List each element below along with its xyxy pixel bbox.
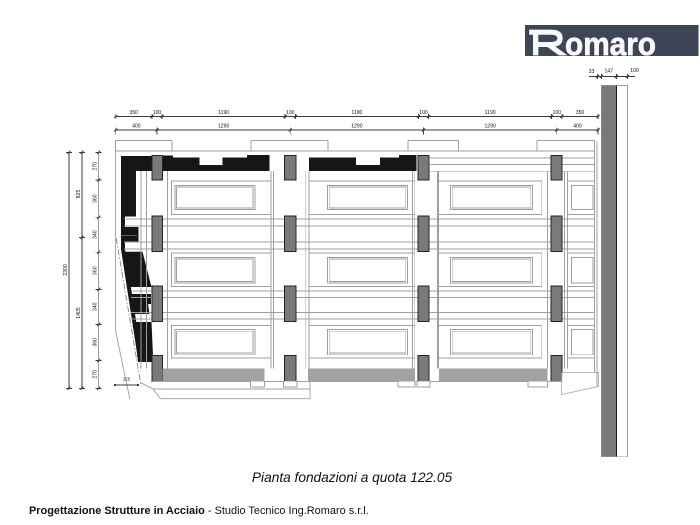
svg-text:Progettazione Strutture in Acc: Progettazione Strutture in Acciaio - Stu… xyxy=(29,505,369,517)
svg-text:1190: 1190 xyxy=(218,110,229,116)
svg-text:2300: 2300 xyxy=(63,264,69,276)
svg-text:1190: 1190 xyxy=(351,110,362,116)
svg-text:340: 340 xyxy=(93,302,99,311)
svg-text:360: 360 xyxy=(93,194,99,203)
svg-text:270: 270 xyxy=(93,162,99,171)
svg-text:100: 100 xyxy=(153,110,162,116)
svg-text:340: 340 xyxy=(93,230,99,239)
svg-text:825: 825 xyxy=(76,190,82,199)
svg-text:360: 360 xyxy=(93,338,99,347)
svg-text:1290: 1290 xyxy=(218,124,229,130)
svg-text:350: 350 xyxy=(576,110,585,116)
svg-text:100: 100 xyxy=(419,110,428,116)
svg-text:360: 360 xyxy=(93,266,99,275)
svg-text:270: 270 xyxy=(93,370,99,379)
svg-text:33: 33 xyxy=(589,69,595,75)
svg-text:350: 350 xyxy=(130,110,139,116)
svg-text:1190: 1190 xyxy=(485,110,496,116)
svg-text:Pianta fondazioni a quota 122.: Pianta fondazioni a quota 122.05 xyxy=(252,470,453,485)
svg-text:225: 225 xyxy=(123,377,131,382)
svg-text:100: 100 xyxy=(630,68,639,74)
svg-text:1290: 1290 xyxy=(484,124,495,130)
svg-text:147: 147 xyxy=(604,69,613,75)
svg-text:100: 100 xyxy=(286,110,295,116)
svg-text:100: 100 xyxy=(553,110,562,116)
svg-text:omaro: omaro xyxy=(565,25,656,62)
svg-text:400: 400 xyxy=(132,124,141,130)
svg-text:1290: 1290 xyxy=(351,124,362,130)
svg-text:400: 400 xyxy=(573,124,582,130)
svg-text:1405: 1405 xyxy=(76,307,82,319)
